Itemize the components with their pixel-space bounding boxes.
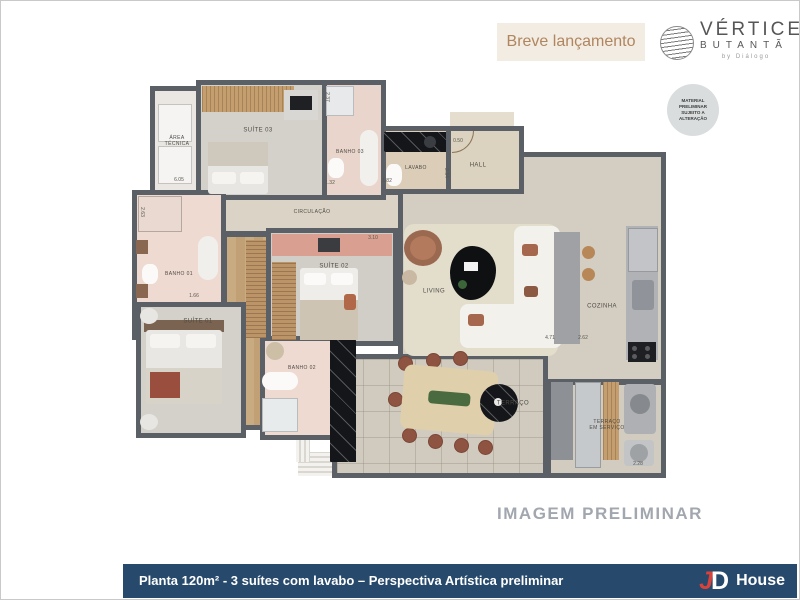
marketing-page: { "header": { "launch_badge": "Breve lan… [0,0,800,600]
globe-icon [660,26,694,60]
label-terraco-servico: TERRAÇO EM SERVIÇO [589,419,624,432]
coffee-table-book [464,262,478,271]
dimension-label: 1.82 [382,178,392,184]
suite02-pillow [331,273,353,285]
brand-name: VÉRTICE [700,20,792,40]
label-suite-02: SUÍTE 02 [319,263,348,271]
living-armchair-cushion [410,236,436,260]
coffee-table-plant [458,280,467,289]
banho02-tub [262,372,298,390]
label-banho-02: BANHO 02 [288,365,316,371]
label-banho-01: BANHO 01 [165,271,193,277]
banho03-shower [326,86,354,116]
banho02-basin [266,342,284,360]
preliminary-watermark: IMAGEM PRELIMINAR [497,504,703,524]
suite02-pillow [304,273,326,285]
dimension-label: 3.10 [368,235,378,241]
closet-wardrobe [246,240,266,338]
dimension-label: 2.28 [633,461,643,467]
dimension-label: 1.66 [189,293,199,299]
brand-text: VÉRTICE BUTANTÃ by Diálogo [700,20,792,60]
footer-bar: Planta 120m² - 3 suítes com lavabo – Per… [123,564,797,598]
suite03-blanket [208,142,268,166]
suite01-throw [150,372,180,398]
label-hall: HALL [470,162,487,170]
disclaimer-badge: MATERIAL PRELIMINAR SUJEITO A ALTERAÇÃO [667,84,719,136]
label-area-tecnica: ÁREA TÉCNICA [165,135,190,148]
dimension-label: 2.63 [139,207,145,217]
suite01-armchair [140,308,158,324]
label-cozinha: COZINHA [587,303,617,311]
sofa-pillow [522,244,538,256]
label-living: LIVING [423,288,445,296]
cooktop-burner [632,354,637,359]
sofa-pillow [468,314,484,326]
label-lavabo: LAVABO [405,165,427,171]
dimension-label: 2.34 [443,168,449,178]
cooktop [628,342,656,362]
banho01-shelf [136,284,148,298]
banho03-toilet [328,158,344,178]
label-circulacao: CIRCULAÇÃO [294,209,331,215]
jd-logo-house: House [736,572,785,590]
cooktop-burner [645,346,650,351]
washer-door [630,394,650,414]
suite03-wardrobe [202,86,294,112]
suite01-armchair [140,414,158,430]
banho01-vanity [198,236,218,280]
suite03-pillow [240,172,264,184]
lavabo-counter [384,132,446,152]
kitchen-island [554,232,580,344]
suite01-pillow [186,334,216,348]
suite02-throw [344,294,356,310]
dimension-label: 6.05 [174,177,184,183]
suite02-computer [318,238,340,252]
kitchen-stool [582,268,595,281]
brand-logo: VÉRTICE BUTANTÃ by Diálogo [660,20,792,60]
banho01-shelf [136,240,148,254]
banho01-toilet [142,264,158,284]
dimension-label: 2.62 [578,335,588,341]
suite02-wardrobe [272,262,296,340]
suite03-tv [290,96,312,110]
brand-byline: by Diálogo [700,54,792,60]
kitchen-sink [632,280,654,310]
jd-logo-d: D [711,567,729,596]
label-suite-01: SUÍTE 01 [183,318,212,326]
suite01-pillow [150,334,180,348]
dimension-label: 0.50 [453,138,463,144]
dimension-label: 2.37 [324,92,330,102]
banho02-shower [262,398,298,432]
cooktop-burner [645,354,650,359]
side-table [402,270,417,285]
sofa-pillow [524,286,538,297]
laundry-sink-basin [630,444,648,462]
label-banho-03: BANHO 03 [336,149,364,155]
banho03-tub [360,130,378,186]
cooktop-burner [632,346,637,351]
bar-counter [330,340,356,462]
label-suite-03: SUÍTE 03 [243,127,272,135]
plan-caption: Planta 120m² - 3 suítes com lavabo – Per… [139,564,563,598]
launch-badge: Breve lançamento [497,23,645,61]
suite03-pillow [212,172,236,184]
brand-subname: BUTANTÃ [700,40,792,52]
lavabo-basin [424,136,436,148]
dimension-label: 4.71 [545,335,555,341]
dimension-label: 1.32 [325,180,335,186]
fridge [628,228,658,272]
kitchen-stool [582,246,595,259]
service-cabinet [551,382,573,460]
jd-house-logo: J D House [699,565,785,597]
label-terraco: TERRAÇO [497,400,529,408]
sofa-horizontal [460,304,562,348]
